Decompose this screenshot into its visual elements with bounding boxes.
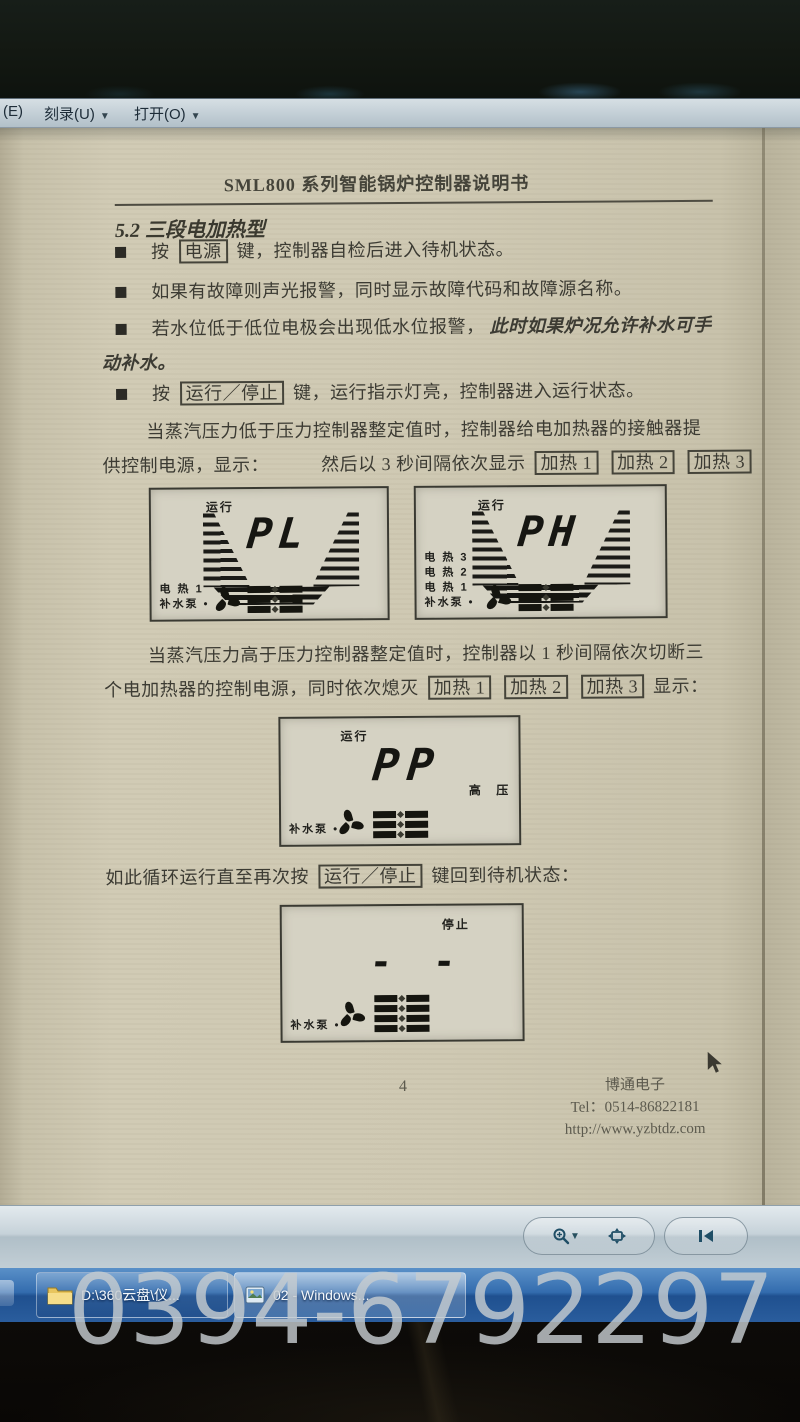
menu-burn[interactable]: 刻录(U)▼ [44,103,110,124]
taskbar-button-photo-viewer[interactable]: 02 - Windows... [234,1272,466,1318]
lcd-left-labels: 补水泵 • [290,1018,340,1033]
previous-button[interactable] [697,1228,715,1244]
zoom-button[interactable]: ▼ [552,1227,580,1245]
actual-size-button[interactable] [608,1228,626,1244]
chevron-down-icon: ▼ [570,1231,580,1242]
lcd-status-label: 运行 [478,496,506,513]
para2-line1: 当蒸汽压力高于压力控制器整定值时，控制器以 1 秒间隔依次切断三 [148,640,704,668]
company-url: http://www.yzbtdz.com [515,1118,755,1142]
lcd-left-labels: 电 热 3 电 热 2 电 热 1 补水泵 • [424,550,474,610]
lcd-status-label: 停止 [442,916,470,933]
bullet-lowwater-cont: 动补水。 [102,351,176,376]
heater-bars-icon [518,584,573,611]
fan-icon [337,810,363,836]
loop-line: 如此循环运行直至再次按 运行／停止 键回到待机状态： [105,863,579,890]
high-pressure-label: 高 压 [469,781,514,798]
bullet-runstop: 按 运行／停止 键，运行指示灯亮，控制器进入运行状态。 [116,378,645,406]
bullet-square-icon [116,389,127,400]
menu-open[interactable]: 打开(O)▼ [134,103,201,124]
water-level-bars-right [584,510,631,584]
run-stop-key-box: 运行／停止 [318,864,423,889]
heater-bars-icon [247,586,302,613]
menu-open-label: 打开(O) [134,106,186,123]
lcd-status-label: 运行 [206,498,234,515]
heat3-box: 加热 3 [687,450,751,474]
taskbar-edge-button[interactable] [0,1280,14,1306]
fan-icon [213,587,239,613]
nav-group [664,1217,748,1255]
menu-burn-label: 刻录(U) [44,106,95,123]
chevron-down-icon: ▼ [100,111,110,122]
run-stop-key-box: 运行／停止 [180,381,285,406]
fan-icon [484,585,510,611]
bullet-fault: 如果有故障则声光报警，同时显示故障代码和故障源名称。 [115,276,632,304]
folder-icon [47,1284,73,1306]
water-level-bars-right [313,512,360,586]
para1-line1: 当蒸汽压力低于压力控制器整定值时，控制器给电加热器的接触器提 [146,416,701,444]
desk-shadow-area [0,1322,800,1422]
taskbar-button-folder[interactable]: D:\360云盘\仪... [36,1272,228,1318]
bullet-square-icon [115,287,126,298]
footer-company-block: 博通电子 Tel：0514-86822181 http://www.yzbtdz… [515,1074,755,1142]
heat3-box: 加热 3 [581,674,645,698]
lcd-status-label: 运行 [340,727,368,744]
lcd-left-labels: 电 热 1 补水泵 • [159,582,209,612]
heat2-box: 加热 2 [504,675,568,699]
photo-viewer-icon [245,1285,265,1305]
heater-bars-icon [374,995,429,1032]
bullet-square-icon [115,247,126,258]
fan-icon [338,1002,364,1028]
viewer-toolbar: ▼ [0,1205,800,1268]
menu-email[interactable]: (E) [3,103,23,120]
lcd-left-labels: 补水泵 • [289,822,339,837]
monitor-bezel-top [0,0,800,98]
water-level-bars-left [472,511,519,585]
bullet-power: 按 电源 键，控制器自检后进入待机状态。 [115,237,514,264]
bullet-square-icon [116,324,127,335]
lcd-digits: PL [245,509,312,558]
company-name: 博通电子 [515,1074,755,1098]
page-number: 4 [399,1078,407,1096]
lcd-digits: - - [368,942,467,984]
taskbar: D:\360云盘\仪... 02 - Windows... [0,1268,800,1322]
para1-line2: 供控制电源，显示： 然后以 3 秒间隔依次显示 加热 1 加热 2 加热 3 [103,450,756,479]
actual-size-icon [608,1228,626,1244]
company-tel: Tel：0514-86822181 [515,1096,755,1120]
zoom-fit-group: ▼ [523,1217,655,1255]
heater-bars-icon [373,811,428,838]
heat1-box: 加热 1 [534,451,598,475]
doc-header-title: SML800 系列智能锅炉控制器说明书 [0,167,757,198]
taskbar-button-folder-label: D:\360云盘\仪... [81,1285,180,1305]
lcd-digits: PH [516,507,583,556]
photographed-monitor: (E) 刻录(U)▼ 打开(O)▼ SML800 系列智能锅炉控制器说明书 5.… [0,0,800,1422]
lcd-figure-ph: 运行 PH 电 热 3 电 热 2 电 热 1 补水泵 • [414,484,668,620]
para2-line2: 个电加热器的控制电源，同时依次熄灭 加热 1 加热 2 加热 3 显示： [104,674,709,702]
heat2-box: 加热 2 [611,450,675,474]
lcd-figure-pp: 运行 PP 高 压 补水泵 • [278,715,521,847]
water-level-bars-left [203,513,250,587]
previous-icon [697,1228,715,1244]
document-page: SML800 系列智能锅炉控制器说明书 5.2 三段电加热型 按 电源 键，控制… [0,128,800,1205]
viewer-menubar: (E) 刻录(U)▼ 打开(O)▼ [0,98,800,128]
magnifier-icon [552,1227,570,1245]
lcd-figure-standby: 停止 - - 补水泵 • [280,903,525,1043]
power-key-box: 电源 [179,239,228,263]
bullet-lowwater: 若水位低于低位电极会出现低水位报警， 此时如果炉况允许补水可手 [116,313,712,341]
heat1-box: 加热 1 [428,675,492,699]
lcd-figure-pl: 运行 PL 电 热 1 补水泵 • [149,486,390,622]
lcd-digits: PP [370,740,444,792]
header-rule [115,200,713,206]
chevron-down-icon: ▼ [191,111,201,122]
taskbar-button-photo-viewer-label: 02 - Windows... [273,1287,369,1303]
